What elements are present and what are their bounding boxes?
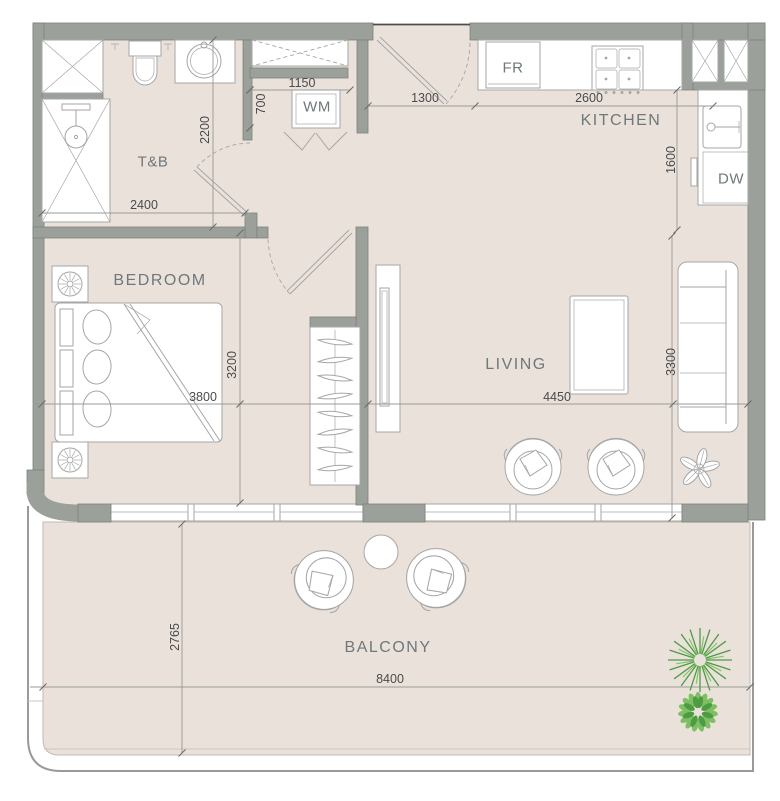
dim-balcony-width: 8400 [376,672,404,686]
wardrobe [310,327,360,485]
armchair [587,438,645,495]
dim-bedroom-height: 3200 [225,351,239,379]
coffee-table [570,296,628,394]
sofa [678,262,738,432]
balcony-table [364,535,398,569]
dim-tb-width: 2400 [130,198,158,212]
dim-bedroom-width: 3800 [189,390,217,404]
floor-plan: T&B KITCHEN BEDROOM LIVING BALCONY FR WM… [0,0,780,801]
bed [55,303,222,442]
tv [380,288,389,406]
dim-wm-width: 1150 [289,76,316,90]
dim-living-width: 4450 [543,390,571,404]
dim-kitchen-width: 2600 [575,91,603,105]
room-label-kitchen: KITCHEN [581,112,662,130]
dim-entry-width: 1300 [411,91,439,105]
dim-tb-height: 2200 [198,116,212,144]
dim-kitchen-depth: 1600 [664,146,678,174]
dim-balcony-depth: 2765 [168,623,182,651]
dim-living-height: 3300 [664,348,678,376]
lamp-icon [58,272,82,296]
room-label-living: LIVING [485,356,546,374]
armchair [504,438,562,495]
appliance-label-dishwasher: DW [718,171,744,188]
dim-wm-depth: 700 [254,94,268,115]
lamp-icon [58,448,82,472]
room-label-tb: T&B [138,154,169,171]
room-label-bedroom: BEDROOM [113,272,206,290]
room-label-balcony: BALCONY [345,639,432,657]
appliance-label-washer: WM [303,99,331,116]
appliance-label-fridge: FR [503,60,524,77]
